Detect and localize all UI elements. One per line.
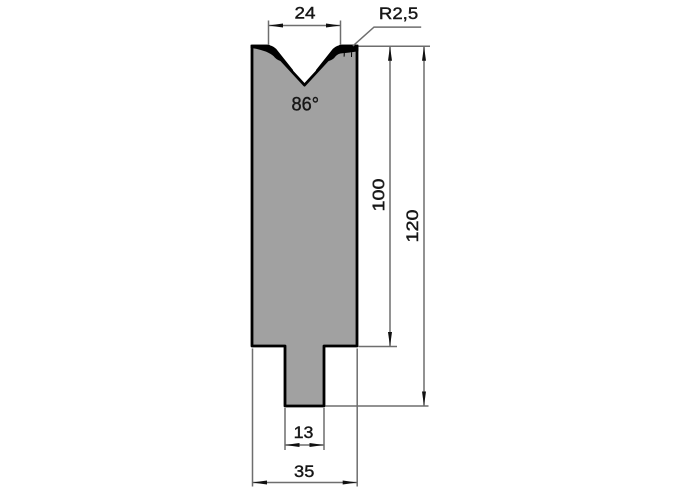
svg-text:86°: 86° [292, 94, 320, 116]
svg-text:24: 24 [295, 3, 316, 22]
svg-text:120: 120 [403, 210, 422, 243]
svg-text:R2,5: R2,5 [379, 4, 418, 23]
svg-text:35: 35 [294, 462, 314, 481]
svg-text:100: 100 [369, 179, 388, 212]
svg-text:13: 13 [294, 423, 314, 442]
